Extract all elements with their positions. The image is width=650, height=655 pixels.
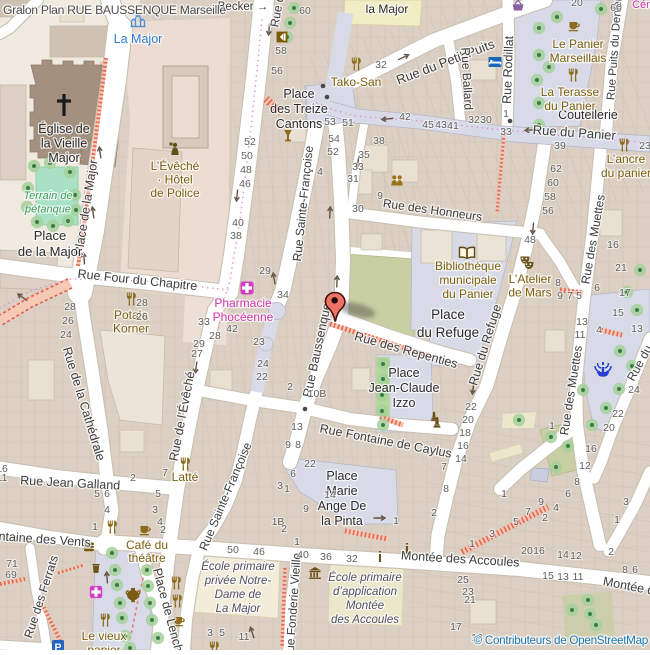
svg-text:21: 21	[615, 262, 627, 274]
svg-text:5: 5	[513, 516, 519, 528]
svg-text:1: 1	[501, 488, 507, 500]
svg-text:municipale: municipale	[439, 273, 497, 287]
svg-text:de Mars: de Mars	[508, 286, 551, 300]
svg-text:10B: 10B	[308, 388, 327, 400]
svg-text:14: 14	[455, 453, 467, 465]
svg-text:pétanque: pétanque	[24, 204, 71, 216]
svg-text:46: 46	[239, 178, 251, 190]
svg-text:© Contributeurs de OpenStreetM: © Contributeurs de OpenStreetMap	[474, 634, 649, 647]
svg-text:15: 15	[612, 307, 624, 319]
svg-text:L’Atelier: L’Atelier	[509, 272, 552, 286]
svg-text:théâtre: théâtre	[128, 551, 166, 565]
svg-text:Place: Place	[388, 366, 419, 380]
svg-text:Place: Place	[283, 87, 314, 101]
svg-text:46: 46	[253, 546, 265, 558]
svg-text:Montée: Montée	[346, 600, 384, 612]
svg-text:2: 2	[160, 524, 166, 536]
svg-text:30: 30	[352, 203, 364, 215]
svg-text:42: 42	[399, 111, 411, 123]
svg-text:Major: Major	[48, 151, 79, 165]
svg-text:50: 50	[227, 544, 239, 556]
svg-text:34: 34	[277, 289, 289, 301]
svg-text:12: 12	[579, 460, 591, 472]
svg-text:La Terasse: La Terasse	[541, 85, 600, 99]
svg-text:du Panier: du Panier	[442, 287, 493, 301]
svg-text:Ange De: Ange De	[318, 499, 367, 513]
svg-text:Café du: Café du	[126, 538, 168, 552]
svg-text:52: 52	[244, 136, 256, 148]
svg-text:42: 42	[226, 323, 238, 335]
svg-text:Église de: Église de	[38, 121, 89, 136]
svg-text:Céra: Céra	[632, 0, 650, 11]
svg-text:· Hôtel: · Hôtel	[157, 173, 192, 187]
svg-text:31: 31	[347, 173, 359, 185]
svg-text:Latté: Latté	[172, 470, 199, 484]
svg-text:50: 50	[241, 150, 253, 162]
svg-text:32: 32	[346, 553, 358, 565]
svg-text:7: 7	[525, 506, 531, 518]
svg-text:Tako-San: Tako-San	[331, 75, 382, 89]
svg-text:29: 29	[259, 265, 271, 277]
svg-text:52: 52	[327, 146, 339, 158]
svg-text:33: 33	[352, 161, 364, 173]
svg-text:32: 32	[468, 114, 480, 126]
svg-text:1: 1	[92, 521, 98, 533]
svg-text:8: 8	[574, 476, 580, 488]
svg-text:22: 22	[612, 408, 624, 420]
svg-text:Rue Rodillat: Rue Rodillat	[500, 35, 516, 104]
svg-text:36: 36	[320, 551, 332, 563]
svg-text:13: 13	[557, 571, 569, 583]
svg-text:22: 22	[304, 458, 316, 470]
svg-text:16: 16	[533, 545, 545, 557]
svg-text:24: 24	[628, 384, 640, 396]
svg-text:3: 3	[207, 627, 213, 639]
svg-text:4: 4	[317, 166, 323, 178]
svg-text:Bibliothèque: Bibliothèque	[435, 259, 501, 273]
svg-text:4: 4	[553, 502, 559, 514]
svg-text:60: 60	[299, 5, 311, 17]
svg-text:38: 38	[230, 230, 242, 242]
svg-text:Place: Place	[326, 469, 357, 483]
svg-text:d’application: d’application	[333, 586, 397, 598]
svg-text:25: 25	[457, 574, 469, 586]
svg-text:privée Notre-: privée Notre-	[204, 575, 272, 587]
svg-text:Place: Place	[34, 228, 67, 243]
svg-text:École primaire: École primaire	[201, 560, 275, 573]
svg-text:60: 60	[547, 177, 559, 189]
svg-text:7: 7	[441, 461, 447, 473]
svg-text:56: 56	[542, 205, 554, 217]
svg-text:39: 39	[554, 140, 566, 152]
svg-text:Le Panier: Le Panier	[552, 37, 603, 51]
svg-text:Jean-Claude: Jean-Claude	[369, 381, 440, 395]
svg-text:5: 5	[219, 627, 225, 639]
svg-text:2: 2	[130, 472, 136, 484]
svg-text:20: 20	[603, 422, 615, 434]
svg-text:24: 24	[257, 358, 269, 370]
svg-text:6: 6	[565, 488, 571, 500]
svg-text:12: 12	[570, 550, 582, 562]
svg-text:La Major: La Major	[216, 603, 262, 615]
svg-text:11: 11	[575, 329, 586, 341]
svg-text:16: 16	[585, 443, 597, 455]
svg-text:11: 11	[573, 571, 584, 583]
svg-text:20: 20	[571, 0, 583, 9]
svg-text:48: 48	[240, 164, 252, 176]
svg-text:9: 9	[303, 503, 309, 515]
svg-text:40: 40	[297, 549, 309, 561]
svg-text:18: 18	[459, 427, 471, 439]
svg-text:2: 2	[431, 507, 437, 519]
svg-text:Phocéenne: Phocéenne	[213, 310, 274, 324]
svg-text:4: 4	[596, 324, 602, 336]
svg-text:Dame de: Dame de	[215, 589, 262, 601]
svg-text:13: 13	[576, 316, 588, 328]
svg-text:1: 1	[393, 515, 399, 527]
svg-text:41: 41	[447, 120, 459, 132]
svg-text:53: 53	[324, 116, 336, 128]
svg-text:3: 3	[623, 496, 629, 508]
svg-text:28: 28	[209, 330, 221, 342]
svg-text:2: 2	[287, 381, 293, 393]
svg-text:3: 3	[489, 528, 495, 540]
svg-text:9: 9	[285, 439, 291, 451]
svg-text:26: 26	[62, 315, 74, 327]
svg-text:8: 8	[443, 483, 449, 495]
svg-text:Terrain de: Terrain de	[23, 190, 72, 202]
svg-text:21: 21	[464, 594, 476, 606]
svg-text:69: 69	[5, 569, 17, 581]
svg-text:30: 30	[480, 114, 492, 126]
svg-text:9: 9	[377, 190, 383, 202]
svg-text:1: 1	[284, 483, 290, 495]
svg-text:14: 14	[557, 549, 569, 561]
svg-text:Korner: Korner	[113, 322, 149, 336]
svg-text:1: 1	[614, 514, 620, 526]
svg-text:8: 8	[622, 564, 628, 576]
svg-text:8: 8	[555, 277, 561, 289]
svg-text:6: 6	[290, 468, 296, 480]
svg-text:17: 17	[450, 621, 462, 633]
svg-text:papier: papier	[87, 643, 120, 650]
svg-text:Izzo: Izzo	[393, 396, 416, 410]
svg-text:33: 33	[500, 126, 512, 138]
svg-text:Le vieux: Le vieux	[82, 629, 127, 643]
svg-text:Pharmacie: Pharmacie	[214, 296, 272, 310]
svg-text:4: 4	[104, 504, 110, 516]
svg-text:5: 5	[155, 488, 161, 500]
svg-text:7: 7	[567, 290, 573, 302]
svg-text:15: 15	[542, 570, 554, 582]
svg-text:20: 20	[521, 545, 533, 557]
svg-text:28: 28	[136, 297, 148, 309]
svg-text:51: 51	[342, 117, 354, 129]
svg-text:11: 11	[0, 472, 8, 484]
svg-text:La Major: La Major	[114, 32, 163, 46]
svg-text:16: 16	[607, 239, 619, 251]
svg-text:1: 1	[294, 536, 300, 548]
svg-text:13: 13	[631, 323, 643, 335]
svg-text:de la Major: de la Major	[18, 244, 83, 259]
svg-text:40: 40	[232, 217, 244, 229]
svg-text:58: 58	[275, 45, 287, 57]
svg-text:9: 9	[557, 290, 563, 302]
svg-text:6: 6	[104, 488, 110, 500]
svg-text:11: 11	[239, 631, 250, 643]
svg-text:3: 3	[152, 504, 158, 516]
svg-text:62: 62	[550, 163, 562, 175]
svg-text:du Refuge: du Refuge	[417, 325, 479, 340]
svg-text:2: 2	[608, 546, 614, 558]
svg-text:1: 1	[503, 108, 509, 120]
svg-text:13: 13	[291, 421, 303, 433]
svg-text:5: 5	[94, 488, 100, 500]
svg-text:L’ancre: L’ancre	[607, 152, 646, 166]
svg-text:5: 5	[576, 290, 582, 302]
svg-text:23: 23	[639, 140, 650, 152]
svg-text:17: 17	[619, 287, 631, 299]
svg-text:la Pinta: la Pinta	[321, 514, 363, 528]
svg-text:des Accoules: des Accoules	[331, 614, 399, 626]
svg-text:1: 1	[469, 538, 475, 550]
svg-text:8: 8	[295, 439, 301, 451]
svg-text:3: 3	[277, 480, 283, 492]
svg-text:23: 23	[253, 336, 265, 348]
svg-text:27: 27	[191, 348, 203, 360]
svg-text:des Treize: des Treize	[270, 102, 328, 116]
svg-text:56: 56	[271, 65, 283, 77]
svg-text:35: 35	[358, 149, 370, 161]
svg-text:58: 58	[544, 191, 556, 203]
svg-text:20: 20	[462, 414, 474, 426]
svg-text:28: 28	[64, 301, 76, 313]
svg-text:2: 2	[542, 512, 548, 524]
svg-text:Gralon Plan RUE BAUSSENQUE Mar: Gralon Plan RUE BAUSSENQUE Marseille	[3, 3, 226, 17]
svg-text:60: 60	[610, 2, 622, 14]
svg-text:22: 22	[465, 401, 477, 413]
svg-text:6: 6	[632, 564, 638, 576]
svg-text:7: 7	[162, 467, 168, 479]
svg-text:45: 45	[422, 119, 434, 131]
svg-text:48: 48	[524, 234, 536, 246]
svg-text:16: 16	[457, 440, 469, 452]
svg-text:École primaire: École primaire	[328, 571, 402, 584]
svg-text:54: 54	[328, 133, 340, 145]
svg-text:1: 1	[549, 420, 555, 432]
svg-text:14: 14	[324, 489, 336, 501]
svg-text:26: 26	[136, 311, 148, 323]
svg-text:38: 38	[373, 135, 385, 147]
svg-text:6: 6	[594, 282, 600, 294]
svg-text:2: 2	[281, 523, 287, 535]
svg-text:du Panier: du Panier	[544, 99, 595, 113]
svg-text:L’Évêché: L’Évêché	[151, 158, 200, 173]
svg-text:32: 32	[375, 59, 387, 71]
svg-text:9: 9	[538, 496, 544, 508]
svg-text:Cantons: Cantons	[276, 117, 323, 131]
svg-text:33: 33	[198, 316, 210, 328]
svg-text:22: 22	[256, 371, 268, 383]
svg-text:Marseillais: Marseillais	[550, 51, 607, 65]
svg-text:Place: Place	[431, 307, 465, 322]
svg-text:24: 24	[60, 329, 72, 341]
svg-text:la Major: la Major	[366, 2, 409, 16]
svg-text:de Police: de Police	[150, 186, 200, 200]
svg-text:la Vieille: la Vieille	[41, 137, 87, 151]
svg-text:43: 43	[435, 119, 447, 131]
svg-text:du panier: du panier	[601, 166, 650, 180]
